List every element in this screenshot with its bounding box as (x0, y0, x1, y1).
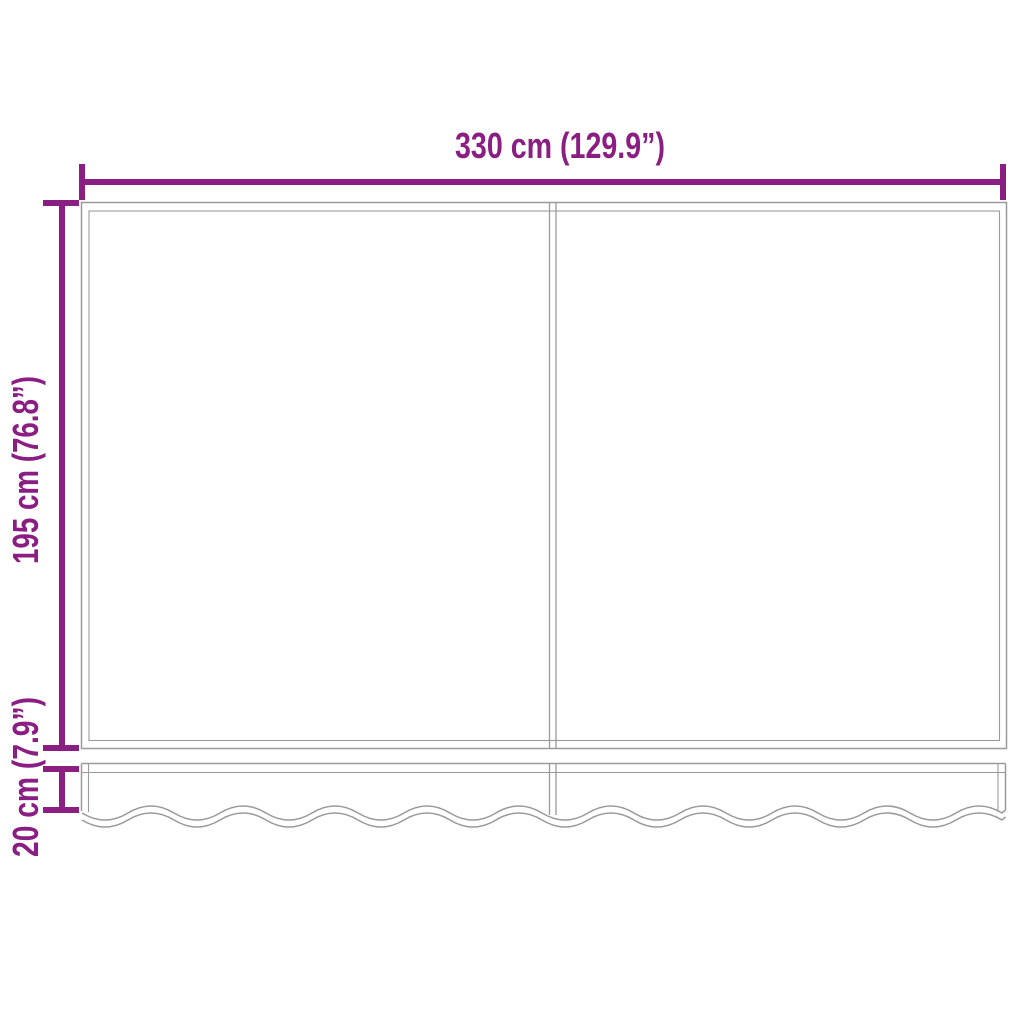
valance-dimension-label: 20 cm (7.9”) (5, 697, 46, 857)
awning-dimension-drawing: 330 cm (129.9”) 195 cm (76.8”) 20 cm (7.… (0, 0, 1024, 1024)
awning-panel-inner-seam (89, 211, 1000, 741)
height-dimension-label: 195 cm (76.8”) (5, 376, 46, 564)
dimension-annotations: 330 cm (129.9”) 195 cm (76.8”) 20 cm (7.… (5, 125, 1006, 857)
width-dimension: 330 cm (129.9”) (79, 125, 1006, 200)
width-dimension-cap-right (1000, 164, 1006, 200)
fabric-outline (82, 203, 1007, 828)
valance-wave-lower-line (82, 813, 1006, 827)
awning-panel-outer-edge (82, 203, 1007, 749)
height-dimension-cap-bottom (43, 745, 79, 751)
valance-dimension-cap-bottom (43, 807, 79, 813)
valance-dimension: 20 cm (7.9”) (5, 697, 79, 857)
dimension-diagram: 330 cm (129.9”) 195 cm (76.8”) 20 cm (7.… (0, 0, 1024, 1024)
width-dimension-label: 330 cm (129.9”) (455, 125, 665, 166)
height-dimension: 195 cm (76.8”) (5, 200, 79, 751)
height-dimension-cap-top (43, 200, 79, 206)
width-dimension-cap-left (79, 164, 85, 200)
valance-dimension-cap-top (43, 766, 79, 772)
